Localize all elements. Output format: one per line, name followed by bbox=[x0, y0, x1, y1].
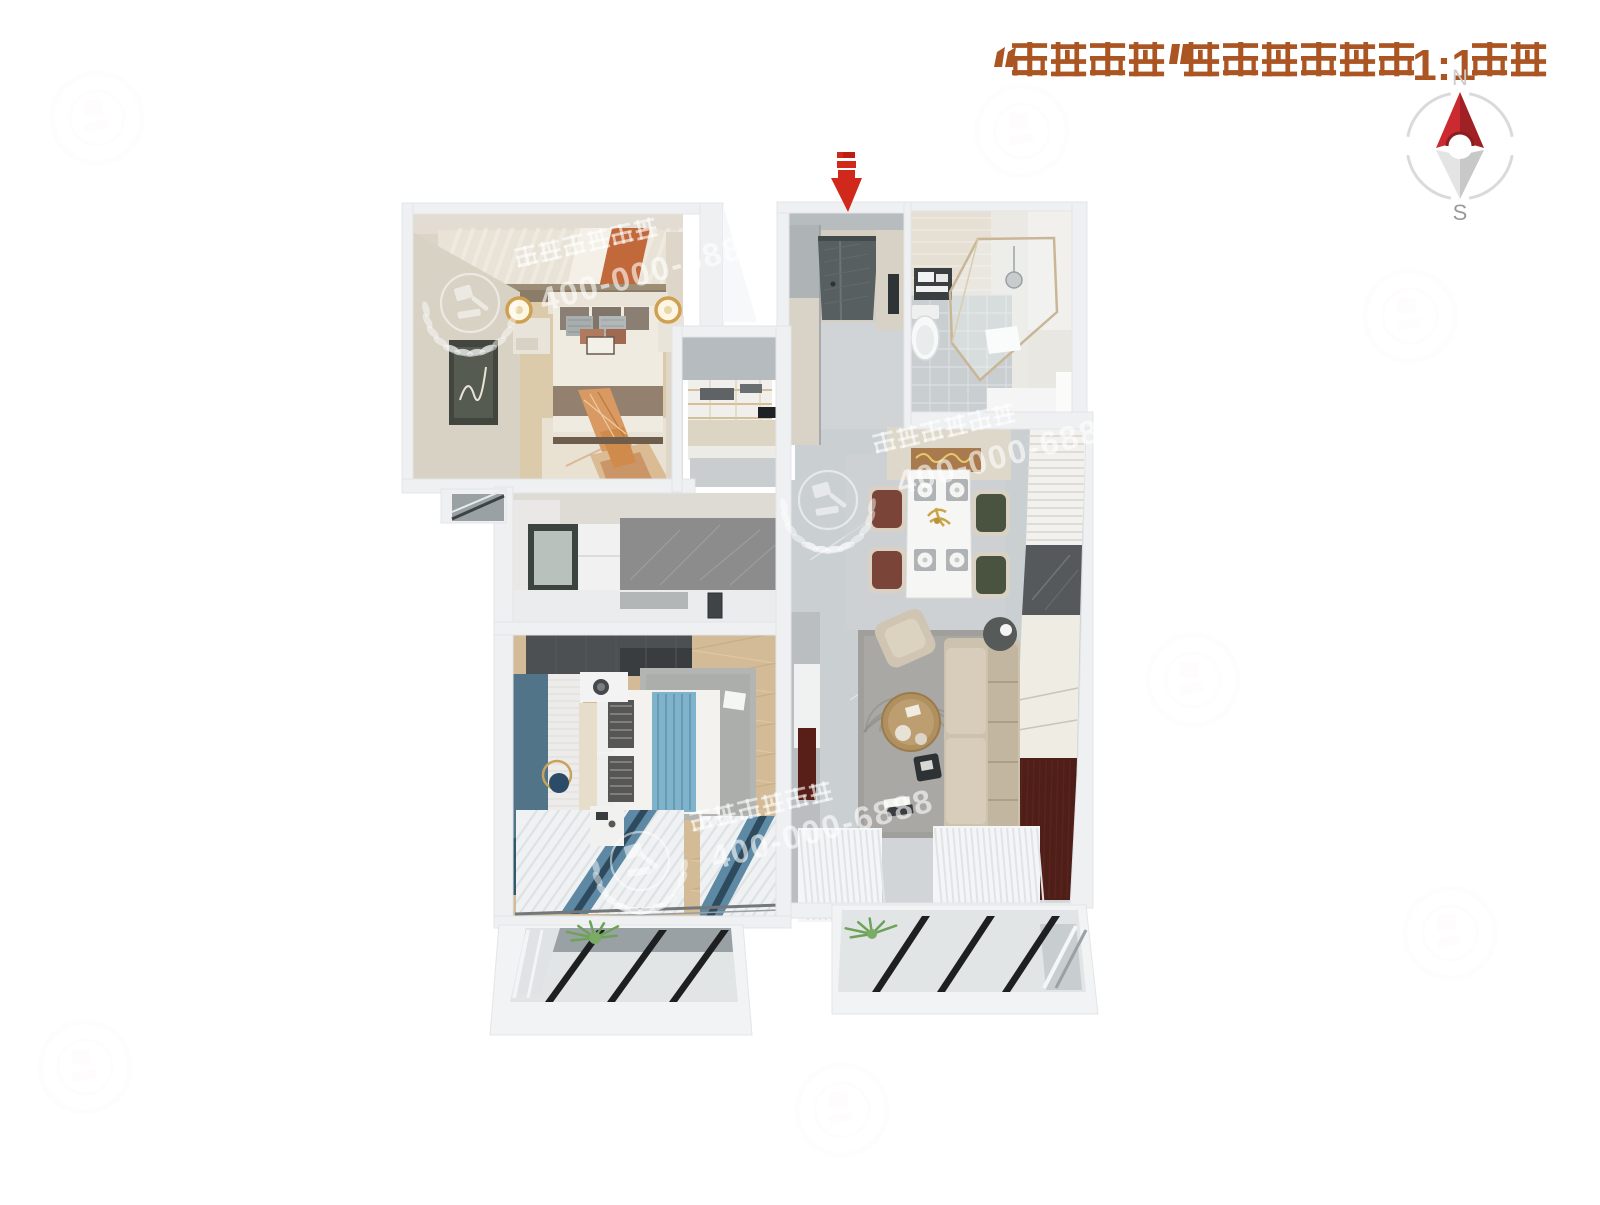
svg-text:S: S bbox=[1453, 200, 1468, 225]
svg-text:N: N bbox=[1452, 65, 1468, 90]
